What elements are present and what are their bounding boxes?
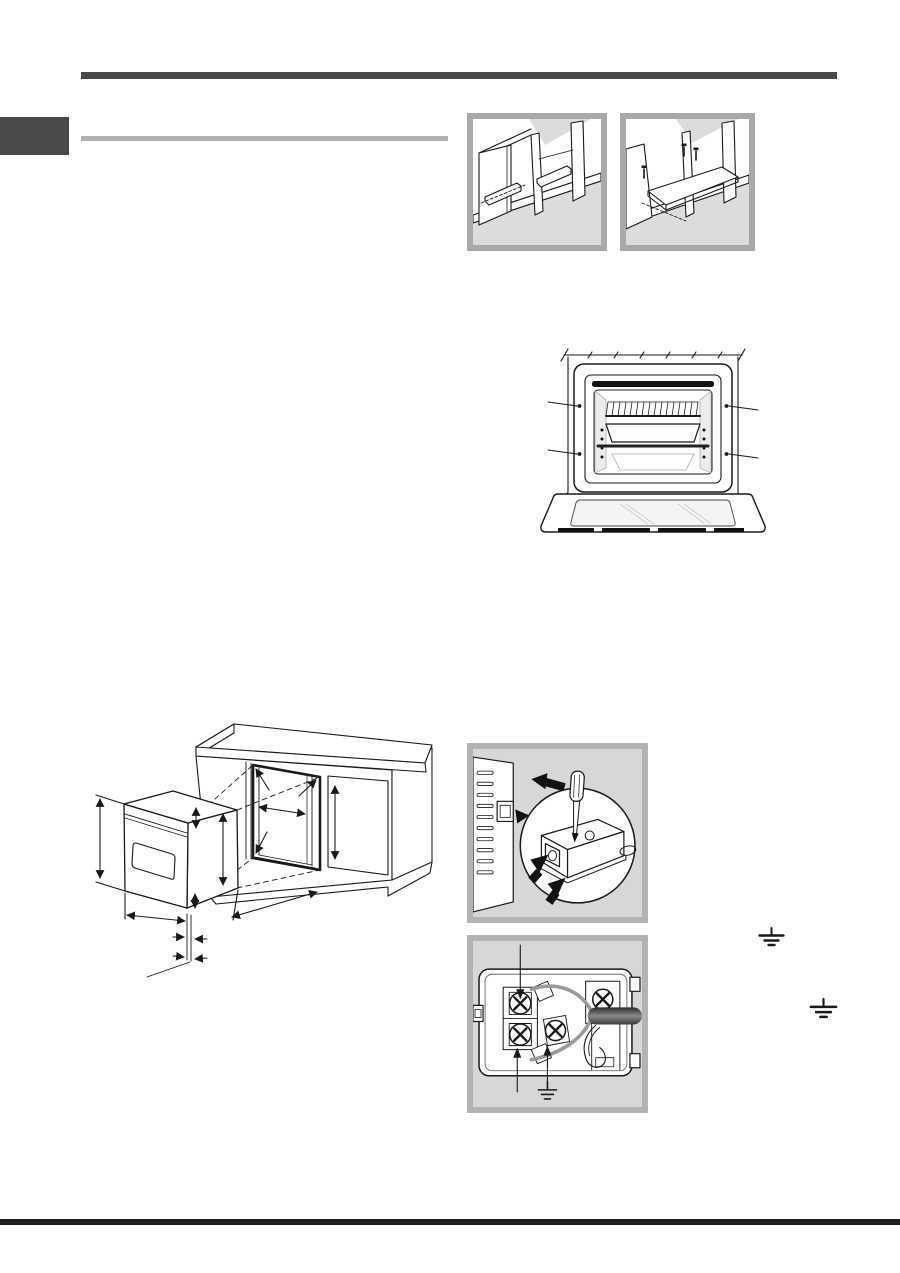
drip-pan bbox=[606, 424, 700, 442]
footer-rule bbox=[0, 1219, 900, 1225]
grill-element bbox=[592, 381, 714, 387]
screw-icon bbox=[694, 148, 699, 161]
power-cable bbox=[588, 1007, 642, 1024]
terminal-box-small bbox=[497, 801, 513, 821]
cabinet-door bbox=[328, 776, 388, 875]
figure-cabinet-support-shelf bbox=[620, 113, 755, 251]
earth-symbol-icon bbox=[538, 1082, 556, 1099]
header-rule bbox=[81, 72, 837, 79]
figure-built-in-dimensions bbox=[85, 710, 437, 990]
earth-symbol-icon bbox=[809, 998, 838, 1019]
figure-cabinet-support-battens bbox=[467, 113, 607, 251]
fixing-hole bbox=[578, 452, 582, 456]
page-edge-tab bbox=[0, 117, 69, 155]
fixing-hole bbox=[578, 404, 582, 408]
manual-page bbox=[0, 0, 900, 1273]
batten-loose bbox=[537, 166, 571, 187]
fixing-hole bbox=[725, 404, 729, 408]
pry-arrow-icon bbox=[531, 773, 565, 791]
section-title-rule bbox=[81, 136, 448, 141]
figure-oven-front-fixing-points bbox=[528, 342, 778, 542]
earth-terminal-screw bbox=[543, 1015, 569, 1045]
figure-terminal-cover-removal bbox=[467, 743, 648, 923]
figure-terminal-board-connection bbox=[467, 935, 648, 1113]
earth-symbol-icon bbox=[758, 927, 785, 947]
clamp-screw bbox=[593, 989, 613, 1009]
terminal-screw bbox=[509, 1023, 531, 1045]
oven-back-panel bbox=[473, 757, 513, 912]
fixing-hole bbox=[725, 452, 729, 456]
